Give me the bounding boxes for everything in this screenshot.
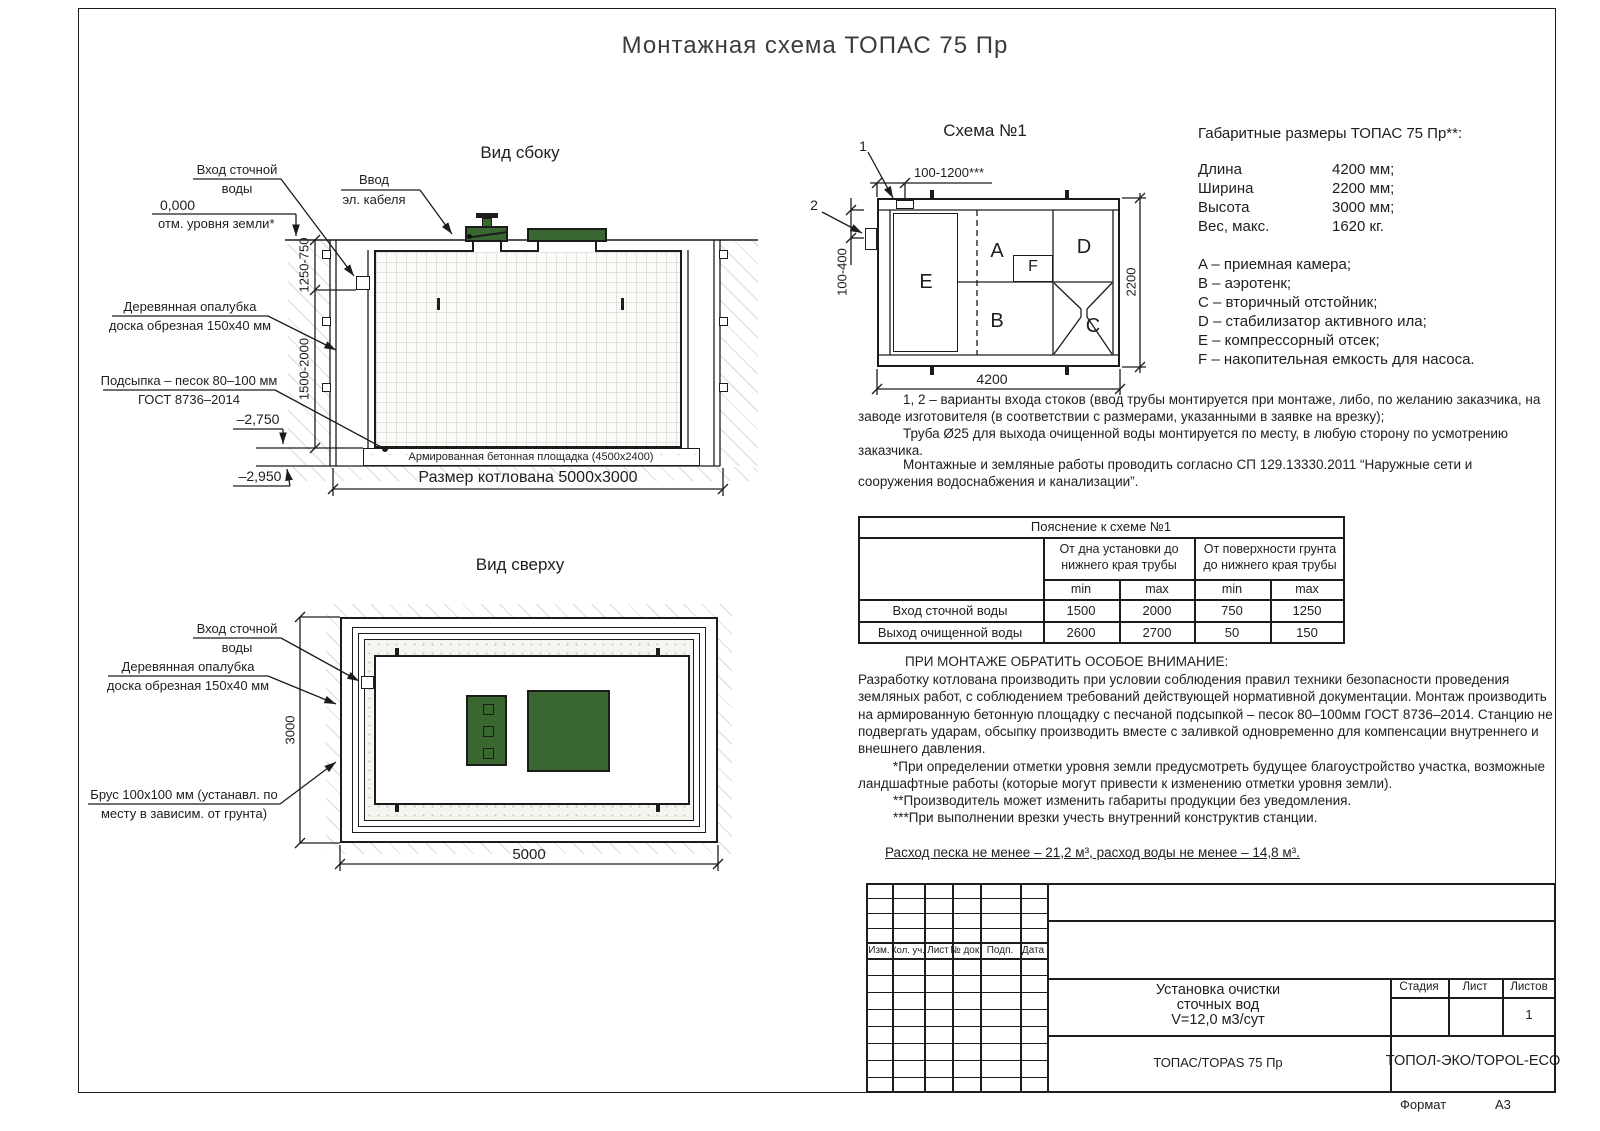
label-inlet-1: Вход сточной: [197, 162, 278, 177]
table-cell: 1500: [1067, 603, 1096, 618]
table-cell: 2600: [1067, 625, 1096, 640]
label-sand-2: ГОСТ 8736–2014: [138, 392, 240, 407]
inlet-pipe-stub-top: [361, 676, 374, 689]
table-title: Пояснение к схеме №1: [1031, 519, 1171, 534]
table-max: max: [1145, 582, 1169, 596]
stamp-line: [952, 883, 954, 1093]
stamp-line: [1047, 1035, 1556, 1037]
stamp-col-list: Лист: [927, 945, 949, 956]
table-line: [858, 599, 1345, 601]
formwork-tab: [719, 383, 728, 392]
schema-dim-bottom: 4200: [976, 371, 1007, 387]
spec-value: 4200 мм;: [1332, 161, 1394, 178]
consumption-note: Расход песка не менее – 21,2 м³, расход …: [885, 845, 1300, 860]
stamp-col-data: Дата: [1022, 945, 1044, 956]
stamp-line: [866, 958, 1047, 960]
lid-vent-cap: [476, 213, 498, 218]
table-line: [1119, 579, 1121, 644]
spec-value: 2200 мм;: [1332, 180, 1394, 197]
tank-mark: [437, 298, 440, 310]
stamp-line: [866, 1077, 1047, 1078]
stamp-line: [866, 898, 1047, 899]
label-formwork-2: доска обрезная 150х40 мм: [109, 318, 271, 333]
table-max: max: [1295, 582, 1319, 596]
small-lid-neck: [472, 241, 502, 252]
stamp-line: [866, 1060, 1047, 1061]
doc-title-2: сточных вод: [1177, 997, 1259, 1013]
dim-lower: 1500-2000: [297, 338, 312, 400]
table-group1: От дна установки до нижнего края трубы: [1047, 541, 1191, 573]
spec-value: 1620 кг.: [1332, 218, 1384, 235]
inlet-variant1-box: [896, 200, 914, 209]
stamp-line: [1390, 978, 1392, 1093]
topview-stub: [395, 648, 399, 656]
stamp-col-izm: Изм.: [868, 945, 889, 956]
stamp-line: [866, 913, 1047, 914]
top-label-inlet-1: Вход сточной: [197, 621, 278, 636]
large-lid-neck: [537, 241, 597, 252]
compartment-E: E: [919, 271, 932, 294]
table-line: [1043, 537, 1045, 644]
stamp-line: [924, 883, 926, 1093]
sheet-label: Лист: [1463, 981, 1488, 993]
topview-stub: [656, 804, 660, 812]
table-cell: 150: [1296, 625, 1318, 640]
note-variants: 1, 2 – варианты входа стоков (ввод трубы…: [858, 392, 1560, 425]
schema-dim-right: 2200: [1124, 268, 1139, 297]
top-label-formwork-2: доска обрезная 150х40 мм: [107, 678, 269, 693]
large-lid: [527, 228, 607, 242]
table-line: [1194, 537, 1196, 644]
dim-3000: 3000: [283, 716, 298, 745]
schema-stub: [930, 190, 934, 198]
label-sand-1: Подсыпка – песок 80–100 мм: [101, 373, 278, 388]
note-pipe: Труба Ø25 для выхода очищенной воды монт…: [858, 426, 1560, 459]
label-formwork-1: Деревянная опалубка: [124, 299, 257, 314]
table-group2: От поверхности грунта до нижнего края тр…: [1198, 541, 1342, 573]
top-label-beam-2: месту в зависим. от грунта): [101, 806, 267, 821]
formwork-tab: [719, 250, 728, 259]
top-label-inlet-2: воды: [222, 640, 253, 655]
legend-item: E – компрессорный отсек;: [1198, 332, 1380, 349]
attention-fn2: **Производитель может изменить габариты …: [858, 793, 1560, 808]
spec-label: Длина: [1198, 161, 1242, 178]
label-cable-1: Ввод: [359, 172, 389, 187]
stamp-line: [1502, 978, 1504, 1035]
inlet-variant2-box: [865, 228, 877, 250]
sideview-structure: [256, 240, 758, 466]
legend-item: F – накопительная емкость для насоса.: [1198, 351, 1475, 368]
label-inlet-2: воды: [222, 181, 253, 196]
stamp-line: [1448, 978, 1450, 1035]
stamp-line: [866, 1009, 1047, 1010]
schema-stub: [1065, 190, 1069, 198]
spec-label: Высота: [1198, 199, 1250, 216]
attention-body: Разработку котлована производить при усл…: [858, 671, 1564, 757]
company-name: ТОПОЛ-ЭКО/TOPOL-ECO: [1386, 1053, 1561, 1069]
schema-dim-top: 100-1200***: [914, 165, 984, 180]
topview-title: Вид сверху: [476, 555, 565, 575]
stamp-line: [1047, 978, 1556, 980]
compartment-F: F: [1028, 258, 1038, 276]
pit-size-label: Размер котлована 5000х3000: [418, 469, 637, 487]
attention-heading: ПРИ МОНТАЖЕ ОБРАТИТЬ ОСОБОЕ ВНИМАНИЕ:: [905, 654, 1228, 669]
table-min: min: [1222, 582, 1242, 596]
stamp-col-koluch: Кол. уч.: [891, 945, 925, 956]
stamp-line: [980, 883, 982, 1093]
stamp-line: [1020, 883, 1022, 1093]
lid-latch: [483, 748, 494, 759]
doc-title-1: Установка очистки: [1156, 982, 1280, 998]
sideview-title: Вид сбоку: [480, 143, 559, 163]
schema-stub: [1065, 367, 1069, 375]
table-line: [1270, 579, 1272, 644]
stamp-line: [866, 942, 1047, 944]
formwork-tab: [322, 250, 331, 259]
stamp-line: [1047, 883, 1049, 1093]
inlet-pipe-stub-side: [356, 276, 370, 290]
legend-item: A – приемная камера;: [1198, 256, 1351, 273]
attention-fn3: ***При выполнении врезки учесть внутренн…: [858, 810, 1560, 825]
elev-bottom-value: –2,950: [239, 468, 282, 484]
top-label-formwork-1: Деревянная опалубка: [122, 659, 255, 674]
marker-2: 2: [810, 197, 818, 213]
stamp-line: [1047, 920, 1556, 922]
model-name: ТОПАС/TOPAS 75 Пр: [1153, 1055, 1282, 1070]
spec-label: Ширина: [1198, 180, 1253, 197]
dim-upper: 1250-750: [297, 238, 312, 293]
schema-marker-leaders: [822, 152, 893, 233]
label-cable-2: эл. кабеля: [342, 192, 405, 207]
specs-heading: Габаритные размеры ТОПАС 75 Пр**:: [1198, 125, 1462, 142]
table-row-label: Выход очищенной воды: [878, 625, 1022, 640]
spec-value: 3000 мм;: [1332, 199, 1394, 216]
stamp-line: [892, 883, 894, 1093]
table-cell: 2700: [1143, 625, 1172, 640]
compartment-B: B: [990, 310, 1003, 333]
table-cell: 750: [1221, 603, 1243, 618]
table-row-label: Вход сточной воды: [893, 603, 1008, 618]
dim-5000: 5000: [512, 846, 545, 863]
small-lid-hinge-dot: [467, 234, 472, 239]
table-line: [858, 537, 1345, 539]
schema-dim-left: 100-400: [835, 248, 850, 296]
label-ground-level: отм. уровня земли*: [158, 216, 275, 231]
stamp-line: [866, 1043, 1047, 1044]
topview-stub: [395, 804, 399, 812]
sheets-label: Листов: [1510, 981, 1547, 993]
elev-pad-value: –2,750: [237, 411, 280, 427]
lid-vent-stem: [482, 218, 492, 227]
topview-stub: [656, 648, 660, 656]
formwork-tab: [322, 317, 331, 326]
compartment-D: D: [1077, 236, 1091, 259]
sheets-value: 1: [1525, 1007, 1532, 1022]
format-label: Формат: [1400, 1097, 1446, 1112]
formwork-tab: [322, 383, 331, 392]
legend-item: C – вторичный отстойник;: [1198, 294, 1377, 311]
stamp-col-podp: Подп.: [987, 945, 1014, 956]
top-label-beam-1: Брус 100х100 мм (устанавл. по: [90, 787, 277, 802]
doc-title-3: V=12,0 м3/сут: [1171, 1012, 1265, 1028]
spec-label: Вес, макс.: [1198, 218, 1269, 235]
label-zero-elev: 0,000: [160, 197, 195, 213]
compartment-A: A: [990, 240, 1003, 263]
stamp-col-ndok: № док.: [950, 945, 982, 956]
table-line: [858, 621, 1345, 623]
format-value: А3: [1495, 1097, 1511, 1112]
stamp-line: [866, 928, 1047, 929]
note-works: Монтажные и земляные работы проводить со…: [858, 457, 1538, 490]
stamp-line: [866, 975, 1047, 976]
schema-title: Схема №1: [943, 121, 1027, 141]
drawing-sheet: Монтажная схема ТОПАС 75 Пр: [0, 0, 1600, 1131]
tank-mark: [621, 298, 624, 310]
table-cell: 50: [1225, 625, 1239, 640]
marker-1: 1: [859, 138, 867, 154]
large-lid-top: [527, 690, 610, 772]
legend-item: B – аэротенк;: [1198, 275, 1291, 292]
table-cell: 2000: [1143, 603, 1172, 618]
lid-latch: [483, 726, 494, 737]
schema-stub: [930, 367, 934, 375]
table-min: min: [1071, 582, 1091, 596]
pad-label: Армированная бетонная площадка (4500х240…: [409, 451, 654, 463]
legend-item: D – стабилизатор активного ила;: [1198, 313, 1427, 330]
stamp-line: [866, 992, 1047, 993]
table-cell: 1250: [1293, 603, 1322, 618]
stage-label: Стадия: [1399, 981, 1438, 993]
attention-fn1: *При определении отметки уровня земли пр…: [858, 759, 1560, 792]
stamp-line: [1390, 997, 1556, 999]
stamp-line: [866, 1026, 1047, 1027]
compartment-C: C: [1086, 315, 1100, 338]
lid-latch: [483, 704, 494, 715]
formwork-tab: [719, 317, 728, 326]
